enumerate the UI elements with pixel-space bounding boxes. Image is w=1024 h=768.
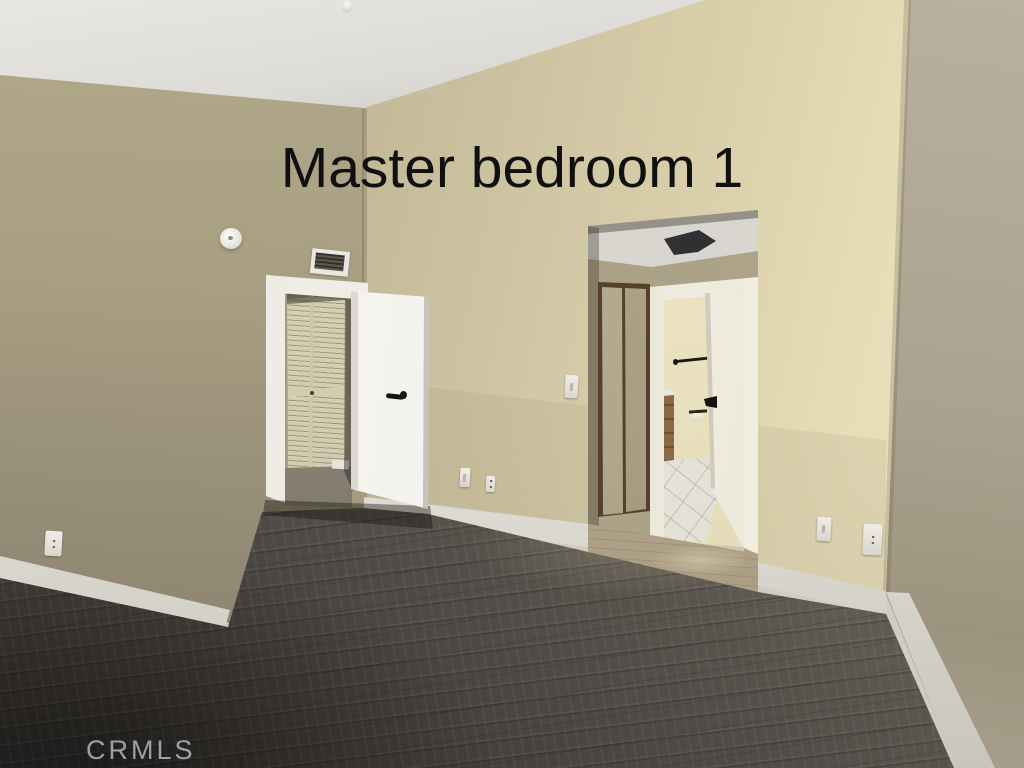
- wall-air-vent: [310, 248, 350, 277]
- towel-bar-end: [673, 359, 678, 365]
- louver-door-rail: [288, 388, 345, 396]
- caption-overlay-text: Master bedroom 1: [0, 135, 1024, 201]
- light-switch-alcove: [564, 375, 578, 399]
- light-switch-mid-wall: [460, 468, 471, 487]
- power-outlet-right: [862, 524, 883, 556]
- vent-grille: [314, 252, 345, 271]
- watermark: CRMLS: [86, 735, 196, 766]
- room-photo: CRMLS Master bedroom 1: [0, 0, 1024, 768]
- power-outlet-lower-left: [44, 531, 62, 557]
- toilet-paper-roll: [691, 413, 703, 422]
- fire-sprinkler: [342, 0, 352, 13]
- louver-door-knob: [310, 391, 314, 395]
- power-outlet-mid-wall: [486, 476, 496, 492]
- bathroom-vanity-countertop: [664, 390, 674, 395]
- smoke-detector: [220, 228, 242, 249]
- phone-jack-right: [816, 517, 831, 542]
- door-handle-rose: [400, 391, 407, 399]
